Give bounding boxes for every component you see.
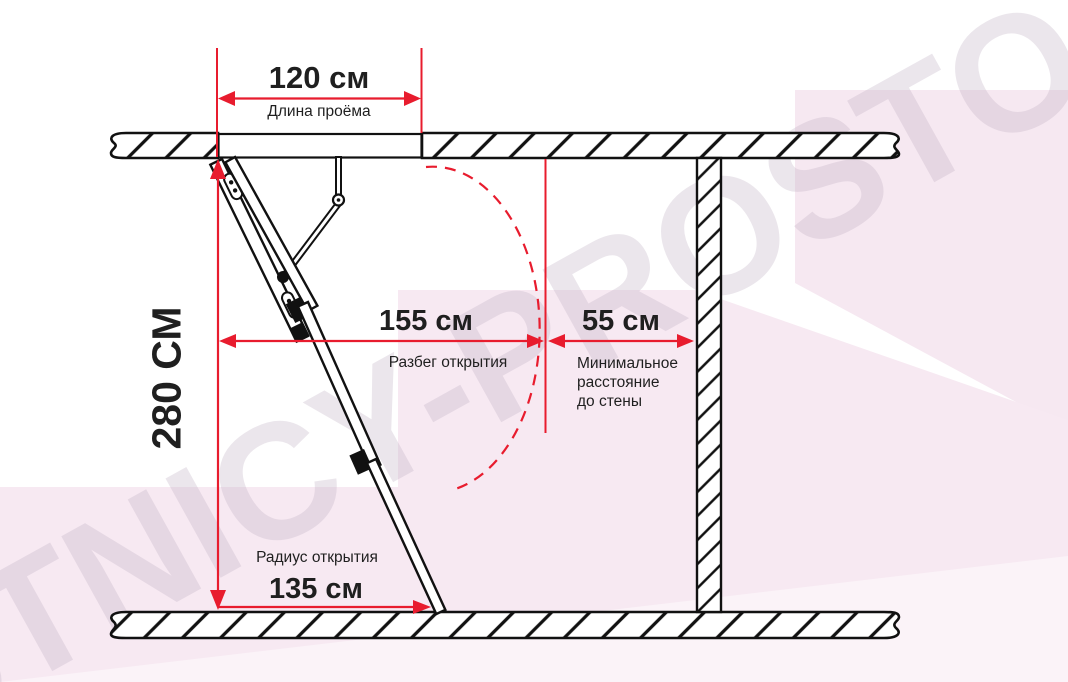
arrow-155-head-right bbox=[527, 334, 544, 348]
ladder-section-lower bbox=[367, 459, 445, 614]
ceiling-right bbox=[422, 133, 899, 158]
wall-clearance-label: Минимальное расстояние до стены bbox=[577, 354, 678, 411]
floor bbox=[111, 612, 899, 638]
wall-clearance-value: 55 см bbox=[582, 305, 660, 338]
opening-run-label: Разбег открытия bbox=[389, 354, 508, 372]
ceiling-left bbox=[111, 133, 218, 158]
arrow-155-head-left bbox=[219, 334, 236, 348]
spring-ball-pin bbox=[337, 198, 341, 202]
opening-run-value: 155 см bbox=[379, 305, 473, 338]
arrow-55-head-right bbox=[677, 334, 694, 348]
opening-radius-label: Радиус открытия bbox=[256, 549, 378, 567]
wall bbox=[697, 158, 721, 612]
arrow-55-head-left bbox=[548, 334, 565, 348]
attic-ladder-dimension-diagram: LESTNICY-PROSTO.RU bbox=[0, 0, 1068, 682]
opening-radius-value: 135 см bbox=[269, 573, 363, 606]
opening-length-value: 120 см bbox=[269, 60, 370, 96]
ceiling-height-value: 280 СМ bbox=[144, 306, 191, 449]
opening-frame bbox=[219, 134, 422, 158]
ladder-section-middle bbox=[298, 302, 380, 469]
spring-bracket bbox=[336, 157, 341, 197]
ladder-assembly bbox=[209, 157, 445, 614]
arrow-120-head-right bbox=[404, 91, 421, 106]
arrow-120-head-left bbox=[218, 91, 235, 106]
opening-length-label: Длина проёма bbox=[267, 103, 370, 121]
